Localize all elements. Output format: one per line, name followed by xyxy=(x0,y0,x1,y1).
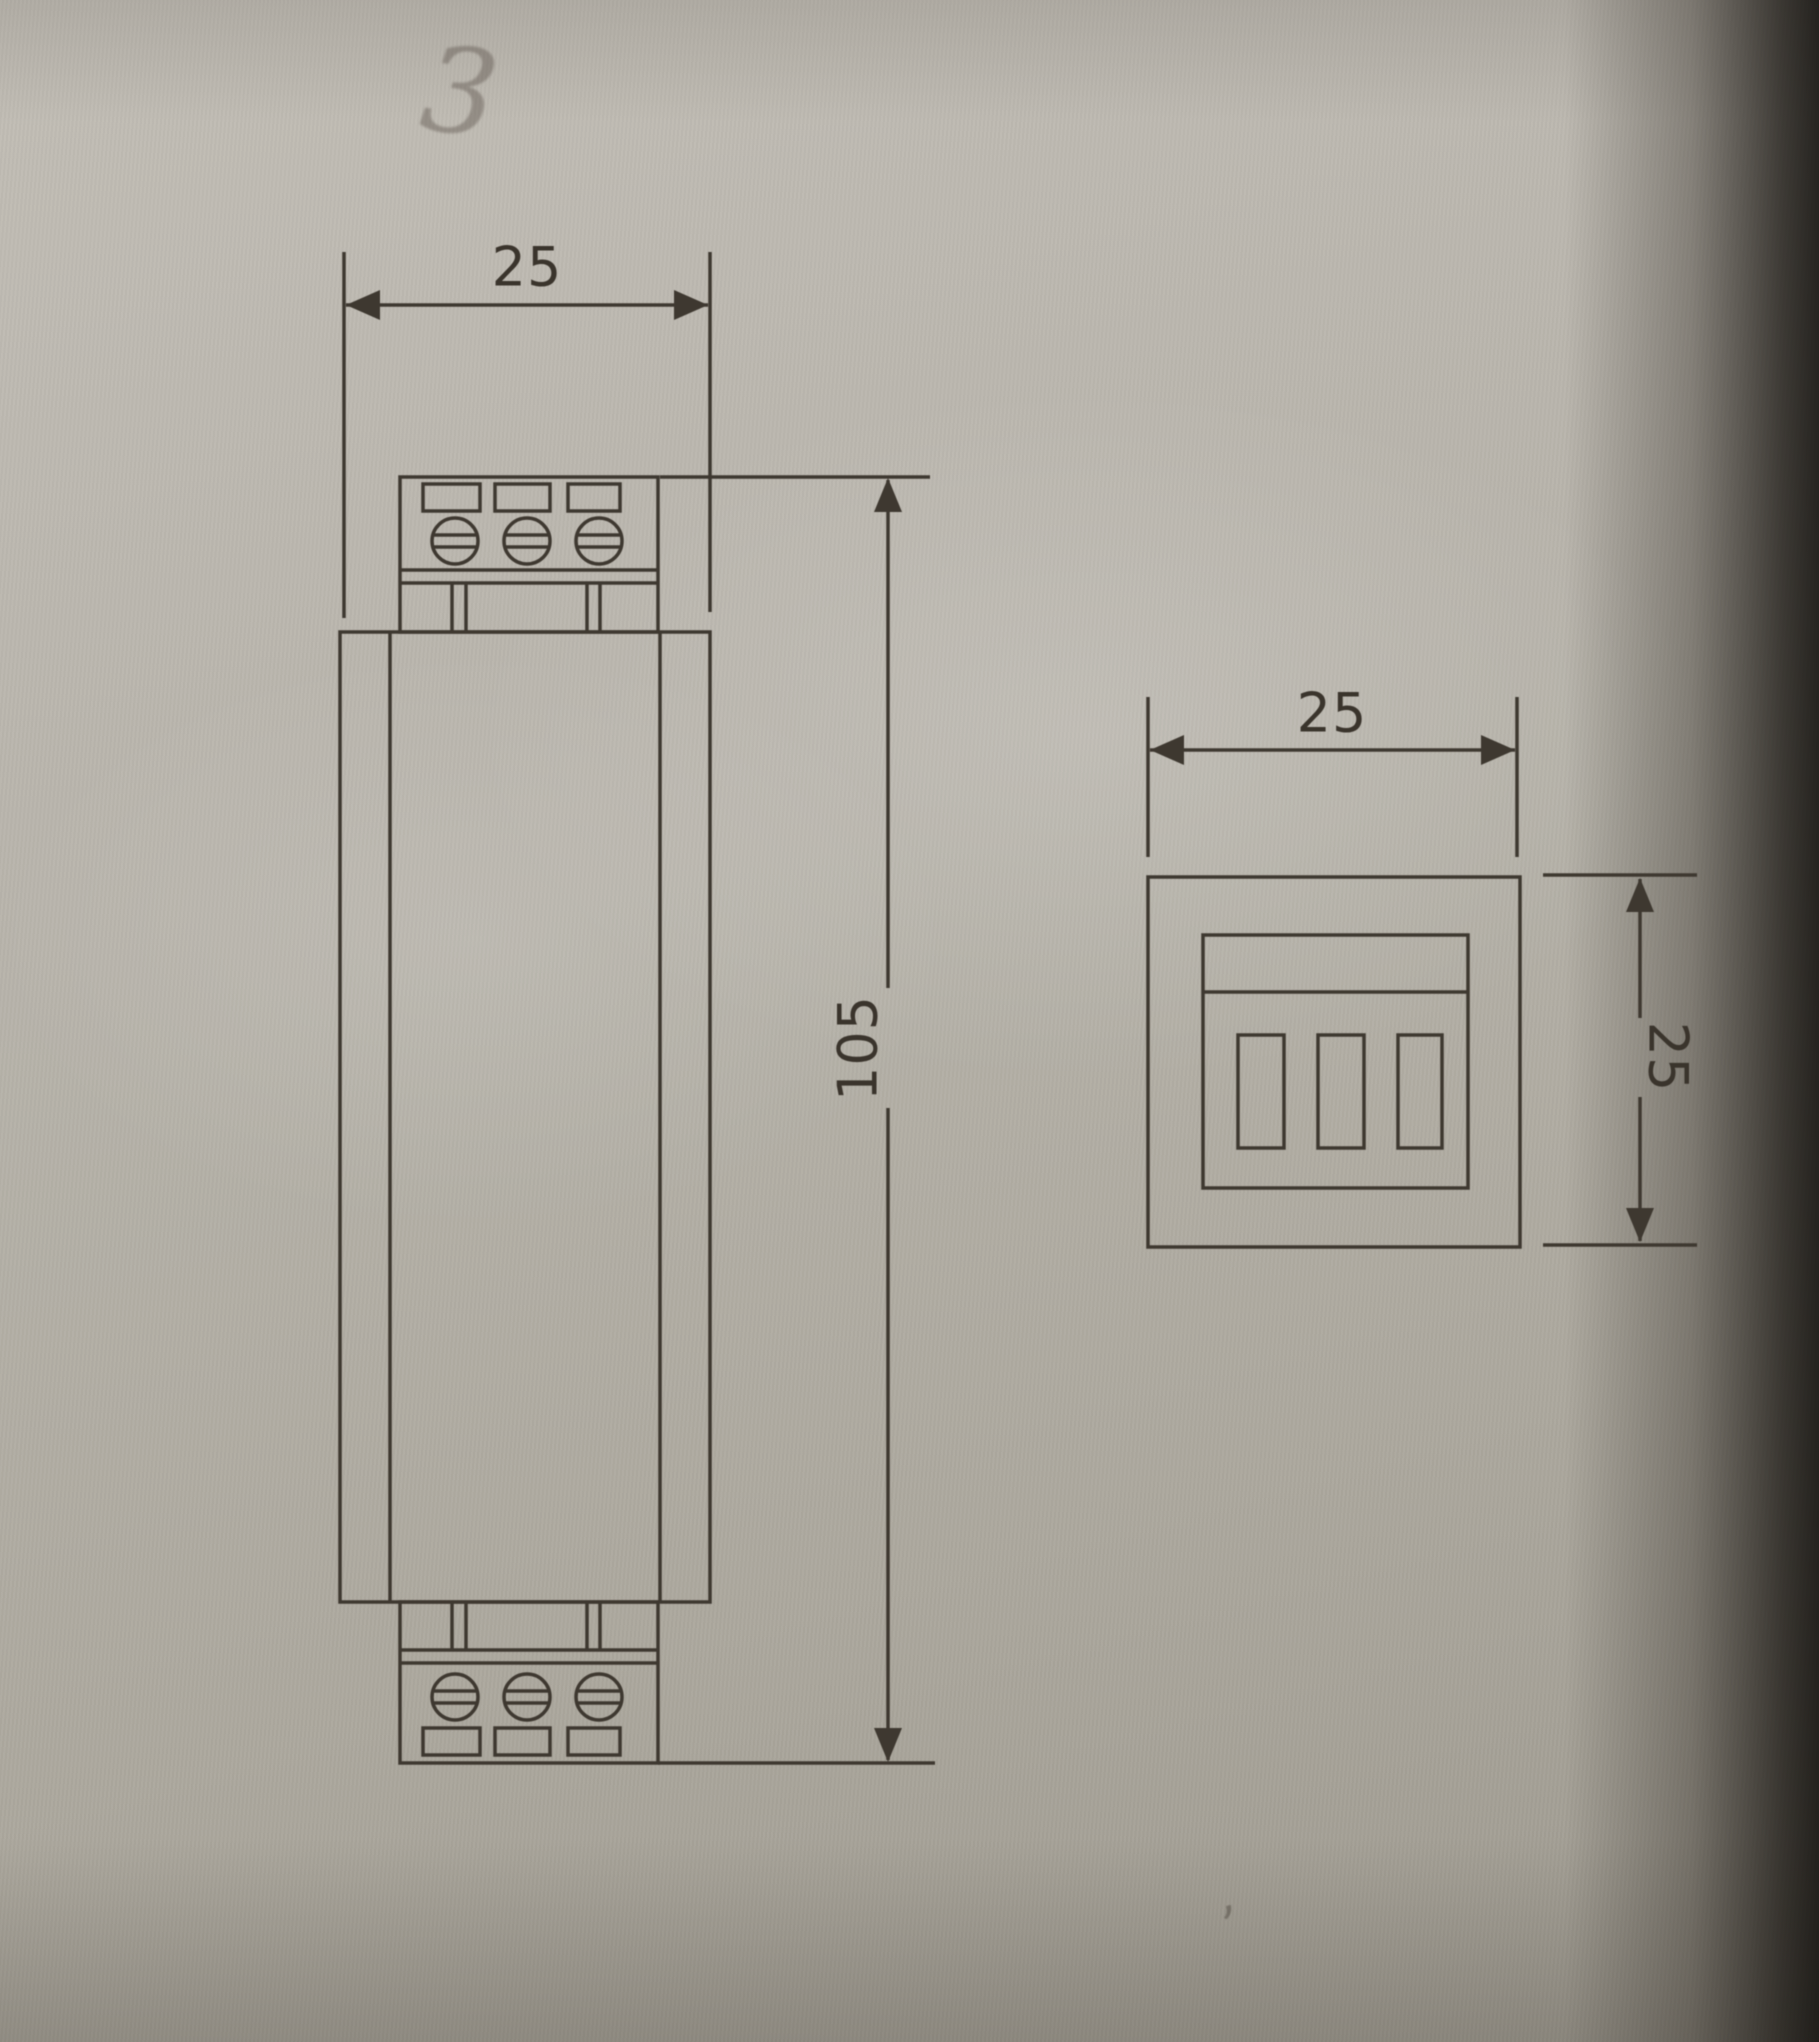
wire-slot xyxy=(495,484,550,511)
wire-slot xyxy=(568,1728,620,1755)
arrowhead-down-icon xyxy=(1626,1208,1654,1242)
wire-slot xyxy=(423,484,480,511)
wire-slot xyxy=(495,1728,550,1755)
end-width-dim-label: 25 xyxy=(1297,682,1368,745)
dimension-drawing: 25 105 25 25 xyxy=(0,0,1819,2042)
terminal-screw-icon xyxy=(504,1674,550,1720)
front-width-dim-label: 25 xyxy=(492,236,563,299)
front-height-dimension xyxy=(658,477,935,1763)
terminal-screw-icon xyxy=(432,1674,478,1720)
end-height-dim-label: 25 xyxy=(1637,1022,1700,1093)
arrowhead-up-icon xyxy=(1626,878,1654,912)
end-face xyxy=(1148,877,1520,1247)
top-terminal-block xyxy=(400,477,658,632)
terminal-screw-icon xyxy=(504,518,550,564)
mounting-tabs xyxy=(452,1602,600,1650)
end-view xyxy=(1148,697,1697,1247)
wire-slot xyxy=(568,484,620,511)
mounting-tabs xyxy=(452,583,600,632)
arrowhead-right-icon xyxy=(674,290,708,320)
body-outline xyxy=(340,632,710,1602)
arrowhead-right-icon xyxy=(1481,735,1515,765)
arrowhead-left-icon xyxy=(346,290,380,320)
terminal-screw-icon xyxy=(432,518,478,564)
body-side-rails xyxy=(390,632,660,1602)
connector-slot xyxy=(1238,1035,1284,1148)
arrowhead-down-icon xyxy=(874,1728,902,1762)
connector-slot xyxy=(1318,1035,1364,1148)
front-height-dim-label: 105 xyxy=(827,995,890,1101)
manual-page-photo: 25 105 25 25 3 , xyxy=(0,0,1819,2042)
bottom-terminal-block xyxy=(400,1602,658,1763)
connector-housing xyxy=(1203,935,1468,1188)
module-body xyxy=(340,632,710,1602)
arrowhead-up-icon xyxy=(874,478,902,512)
terminal-screw-icon xyxy=(576,518,622,564)
terminal-screw-icon xyxy=(576,1674,622,1720)
connector-slot xyxy=(1398,1035,1442,1148)
arrowhead-left-icon xyxy=(1150,735,1184,765)
dimension-drawing-svg xyxy=(0,0,1819,2042)
wire-slot xyxy=(423,1728,480,1755)
